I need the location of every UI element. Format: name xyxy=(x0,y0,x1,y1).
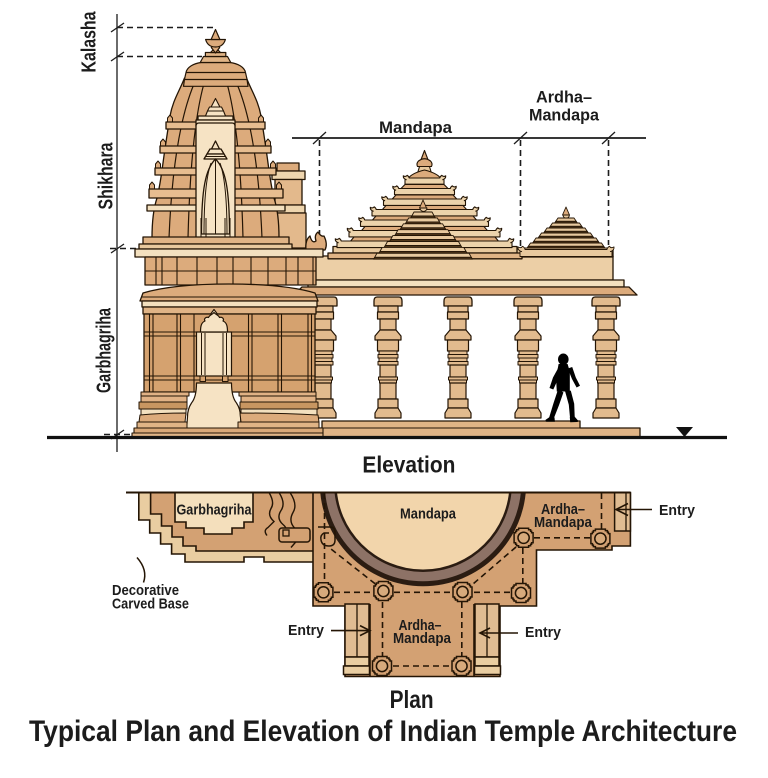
svg-text:Ardha–: Ardha– xyxy=(536,88,592,107)
svg-text:Entry: Entry xyxy=(525,624,562,641)
svg-text:Typical Plan and Elevation of: Typical Plan and Elevation of Indian Tem… xyxy=(29,715,737,748)
svg-text:Mandapa: Mandapa xyxy=(529,106,600,125)
svg-text:Mandapa: Mandapa xyxy=(379,118,453,137)
svg-text:Garbhagriha: Garbhagriha xyxy=(94,307,116,393)
svg-text:Shikhara: Shikhara xyxy=(96,142,118,210)
svg-text:Carved Base: Carved Base xyxy=(112,596,189,613)
svg-text:Mandapa: Mandapa xyxy=(400,506,457,523)
svg-text:Entry: Entry xyxy=(288,622,325,639)
svg-text:Kalasha: Kalasha xyxy=(79,11,101,73)
svg-text:Garbhagriha: Garbhagriha xyxy=(177,502,253,519)
svg-text:Plan: Plan xyxy=(390,686,434,714)
svg-text:Entry: Entry xyxy=(659,502,696,519)
svg-text:Mandapa: Mandapa xyxy=(393,630,452,647)
svg-text:Elevation: Elevation xyxy=(362,452,455,478)
svg-text:Mandapa: Mandapa xyxy=(534,514,593,531)
